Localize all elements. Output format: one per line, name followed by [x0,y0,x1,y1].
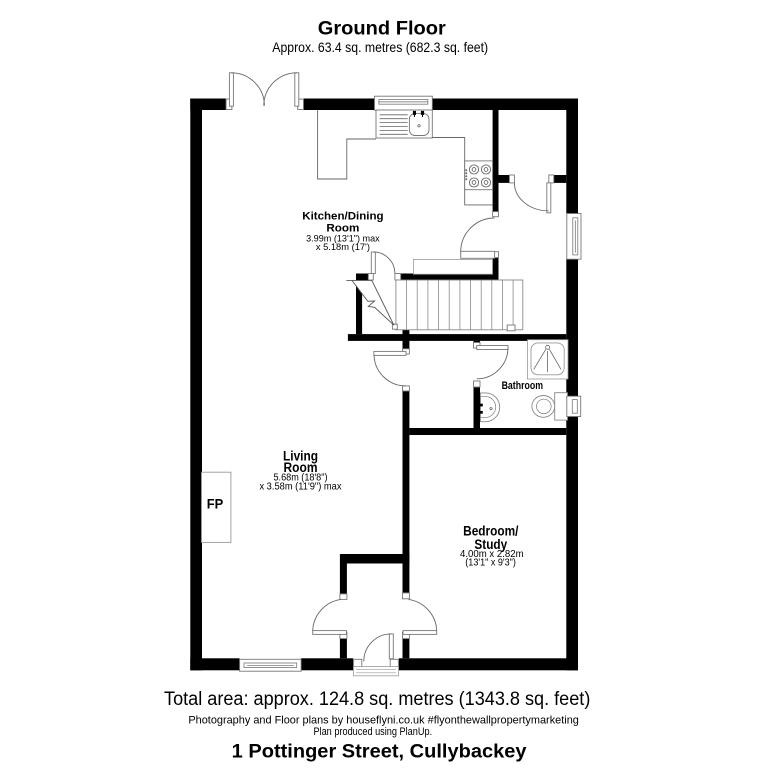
svg-text:Photography and Floor plans by: Photography and Floor plans by houseflyn… [188,715,579,727]
svg-text:x 5.18m (17'): x 5.18m (17') [316,242,370,253]
svg-text:Plan produced using PlanUp.: Plan produced using PlanUp. [313,726,432,738]
svg-text:Ground Floor: Ground Floor [318,18,446,40]
svg-text:Bathroom: Bathroom [502,380,543,392]
svg-text:(13'1" x 9'3"): (13'1" x 9'3") [465,557,516,568]
svg-text:Total area: approx. 124.8 sq.: Total area: approx. 124.8 sq. metres (13… [164,688,590,710]
svg-text:Kitchen/Dining: Kitchen/Dining [302,210,383,222]
svg-text:1 Pottinger Street, Cullybacke: 1 Pottinger Street, Cullybackey [232,740,527,762]
svg-text:x 3.58m (11'9") max: x 3.58m (11'9") max [259,482,341,493]
svg-text:FP: FP [207,496,224,512]
svg-text:Approx. 63.4 sq. metres (682.3: Approx. 63.4 sq. metres (682.3 sq. feet) [272,39,488,55]
